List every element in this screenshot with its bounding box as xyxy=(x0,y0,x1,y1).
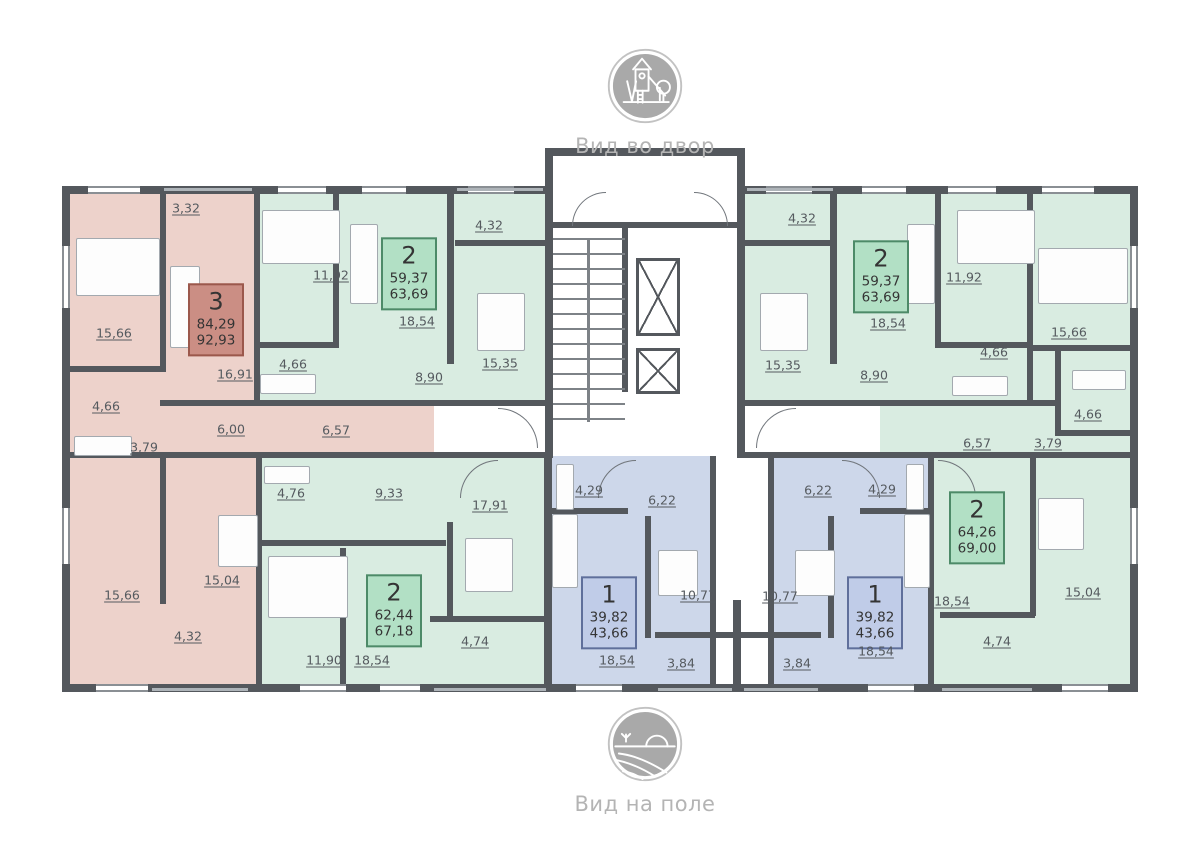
wall xyxy=(1030,456,1036,616)
furniture-table xyxy=(760,293,808,351)
wall xyxy=(160,456,166,604)
wall xyxy=(710,456,716,688)
room-area-label: 6,22 xyxy=(648,493,676,508)
balcony-glazing xyxy=(942,688,1032,691)
room-area-label: 6,00 xyxy=(217,422,245,437)
room-area-label: 17,91 xyxy=(472,498,508,513)
room-area-label: 15,66 xyxy=(96,326,132,341)
wall xyxy=(655,632,735,638)
field-icon xyxy=(607,706,683,782)
balcony-glazing xyxy=(744,688,818,691)
balcony-glazing xyxy=(658,688,732,691)
window xyxy=(868,684,914,692)
furniture-bathtub xyxy=(1072,370,1126,390)
rooms-count: 2 xyxy=(951,496,1003,524)
wall xyxy=(768,456,774,688)
room-area-label: 10,77 xyxy=(762,589,798,604)
wall xyxy=(733,600,741,688)
furniture-bed xyxy=(76,238,160,296)
room-area-label: 6,22 xyxy=(804,483,832,498)
playground-icon xyxy=(607,48,683,124)
wall xyxy=(544,456,552,688)
furniture-sofa xyxy=(907,224,935,304)
wall xyxy=(256,456,262,688)
stair-stringer xyxy=(587,238,590,422)
wall xyxy=(430,616,550,622)
balcony-glazing xyxy=(164,188,252,191)
window xyxy=(96,684,148,692)
room-area-label: 4,66 xyxy=(1074,407,1102,422)
room-area-label: 3,84 xyxy=(783,656,811,671)
living-area: 59,37 xyxy=(383,270,435,287)
room-area-label: 4,29 xyxy=(868,482,896,497)
room-area-label: 15,35 xyxy=(482,356,518,371)
window xyxy=(1130,246,1138,308)
apartment-2c-badge[interactable]: 262,4467,18 xyxy=(366,574,422,647)
room-area-label: 15,66 xyxy=(1051,325,1087,340)
furniture-bathtub xyxy=(556,464,574,510)
window xyxy=(278,186,326,194)
room-area-label: 18,54 xyxy=(354,653,390,668)
living-area: 59,37 xyxy=(855,273,907,290)
room-area-label: 8,90 xyxy=(860,368,888,383)
room-area-label: 10,77 xyxy=(680,588,716,603)
room-area-label: 11,92 xyxy=(313,268,349,283)
room-area-label: 4,32 xyxy=(788,211,816,226)
apartment-2a-badge[interactable]: 259,3763,69 xyxy=(381,237,437,310)
room-area-label: 15,04 xyxy=(1065,585,1101,600)
elevator xyxy=(636,348,680,394)
furniture-table xyxy=(477,293,525,351)
room-area-label: 3,79 xyxy=(130,440,158,455)
room-area-label: 11,92 xyxy=(946,270,982,285)
window xyxy=(380,684,420,692)
wall xyxy=(935,190,941,346)
apartment-2b-badge[interactable]: 259,3763,69 xyxy=(853,240,909,313)
furniture-table xyxy=(218,515,258,567)
door-arc xyxy=(756,408,796,448)
apartment-1a-badge[interactable]: 139,8243,66 xyxy=(581,576,637,649)
window xyxy=(1130,508,1138,564)
window xyxy=(362,186,406,194)
total-area: 67,18 xyxy=(368,624,420,641)
window xyxy=(62,246,70,308)
apartment-1b-badge[interactable]: 139,8243,66 xyxy=(847,576,903,649)
furniture-table xyxy=(465,538,513,592)
room-area-label: 9,33 xyxy=(375,486,403,501)
furniture-sofa xyxy=(350,224,378,304)
rooms-count: 3 xyxy=(190,288,242,316)
room-area-label: 11,90 xyxy=(306,653,342,668)
wall xyxy=(455,240,545,246)
room-area-label: 3,32 xyxy=(172,201,200,216)
apartment-3-badge[interactable]: 384,2992,93 xyxy=(188,283,244,356)
room-area-label: 4,74 xyxy=(983,634,1011,649)
room-area-label: 4,32 xyxy=(174,629,202,644)
room-area-label: 18,54 xyxy=(858,644,894,659)
wall xyxy=(256,540,446,546)
room-area-label: 4,66 xyxy=(279,357,307,372)
elevator xyxy=(636,258,680,336)
total-area: 69,00 xyxy=(951,541,1003,558)
view-top: Вид во двор xyxy=(515,48,775,158)
total-area: 92,93 xyxy=(190,333,242,350)
living-area: 39,82 xyxy=(583,609,635,626)
living-area: 64,26 xyxy=(951,524,1003,541)
room-area-label: 4,32 xyxy=(475,218,503,233)
room-area-label: 18,54 xyxy=(870,316,906,331)
window xyxy=(88,186,140,194)
room-area-label: 4,66 xyxy=(980,345,1008,360)
door-arc xyxy=(694,192,728,226)
room-area-label: 4,29 xyxy=(575,483,603,498)
wall xyxy=(940,612,1035,618)
room-area-label: 6,57 xyxy=(963,436,991,451)
furniture-bathtub xyxy=(264,466,310,484)
room-area-label: 3,84 xyxy=(667,656,695,671)
furniture-bed xyxy=(268,556,348,618)
wall xyxy=(447,190,454,364)
furniture-bathtub xyxy=(906,464,924,510)
living-area: 62,44 xyxy=(368,607,420,624)
room-area-label: 6,57 xyxy=(322,423,350,438)
window xyxy=(1062,684,1108,692)
wall xyxy=(745,240,835,246)
furniture-sofa xyxy=(904,514,930,588)
window xyxy=(1042,186,1094,194)
window xyxy=(862,186,906,194)
furniture-bathtub xyxy=(952,376,1008,396)
total-area: 63,69 xyxy=(855,290,907,307)
room-area-label: 18,54 xyxy=(399,314,435,329)
room-area-label: 18,54 xyxy=(599,653,635,668)
furniture-bed xyxy=(262,210,340,264)
furniture-sofa xyxy=(552,514,578,588)
room-area-label: 4,66 xyxy=(92,399,120,414)
rooms-count: 1 xyxy=(849,581,901,609)
apartment-2d-badge[interactable]: 264,2669,00 xyxy=(949,491,1005,564)
wall xyxy=(745,452,1138,458)
wall xyxy=(1055,348,1061,430)
view-bottom: Вид на поле xyxy=(515,706,775,816)
wall xyxy=(737,186,745,458)
wall xyxy=(1027,345,1132,351)
total-area: 63,69 xyxy=(383,287,435,304)
wall xyxy=(70,366,166,372)
window xyxy=(300,684,346,692)
wall xyxy=(830,190,837,364)
room-area-label: 4,76 xyxy=(277,486,305,501)
view-top-label: Вид во двор xyxy=(515,134,775,158)
balcony-glazing xyxy=(434,688,546,691)
furniture-table xyxy=(795,550,835,596)
room-area-label: 4,74 xyxy=(461,634,489,649)
room-area-label: 16,91 xyxy=(217,367,253,382)
door-arc xyxy=(498,408,538,448)
room-area-label: 18,54 xyxy=(934,594,970,609)
window xyxy=(576,684,622,692)
wall xyxy=(160,400,545,406)
balcony-glazing xyxy=(747,188,833,191)
floor-plan: Вид во двор Вид на поле 384,2992,933,321… xyxy=(0,0,1200,849)
room-area-label: 15,35 xyxy=(765,358,801,373)
wall xyxy=(745,400,1057,406)
balcony-glazing xyxy=(457,188,543,191)
wall xyxy=(645,516,651,638)
window xyxy=(62,508,70,564)
wall xyxy=(254,342,339,348)
rooms-count: 1 xyxy=(583,581,635,609)
furniture-bed xyxy=(1038,248,1128,304)
furniture-bathtub xyxy=(74,436,132,456)
room-area-label: 15,66 xyxy=(104,588,140,603)
rooms-count: 2 xyxy=(368,579,420,607)
room-area-label: 15,04 xyxy=(204,573,240,588)
wall xyxy=(545,186,553,458)
window xyxy=(948,186,996,194)
view-bottom-label: Вид на поле xyxy=(515,792,775,816)
room-area-label: 8,90 xyxy=(415,370,443,385)
rooms-count: 2 xyxy=(383,242,435,270)
living-area: 84,29 xyxy=(190,316,242,333)
furniture-table xyxy=(1038,498,1084,550)
room-area-label: 3,79 xyxy=(1034,436,1062,451)
wall xyxy=(1055,430,1132,436)
wall xyxy=(254,190,260,404)
furniture-bathtub xyxy=(260,374,316,394)
wall xyxy=(447,522,453,622)
wall xyxy=(160,190,166,368)
rooms-count: 2 xyxy=(855,245,907,273)
wall xyxy=(741,632,821,638)
balcony-glazing xyxy=(152,688,248,691)
total-area: 43,66 xyxy=(849,626,901,643)
living-area: 39,82 xyxy=(849,609,901,626)
furniture-bed xyxy=(957,210,1035,264)
door-arc xyxy=(572,192,606,226)
total-area: 43,66 xyxy=(583,626,635,643)
